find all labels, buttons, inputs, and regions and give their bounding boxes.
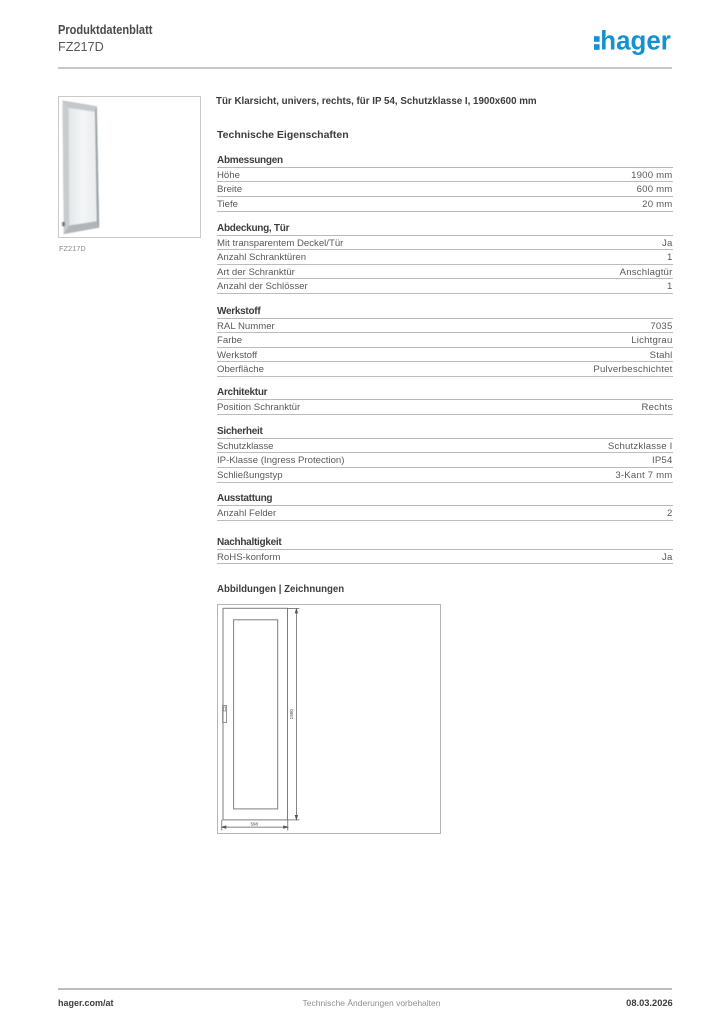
svg-text:hager: hager	[600, 29, 671, 55]
svg-text:1900: 1900	[289, 709, 294, 720]
svg-text:598: 598	[251, 822, 259, 827]
